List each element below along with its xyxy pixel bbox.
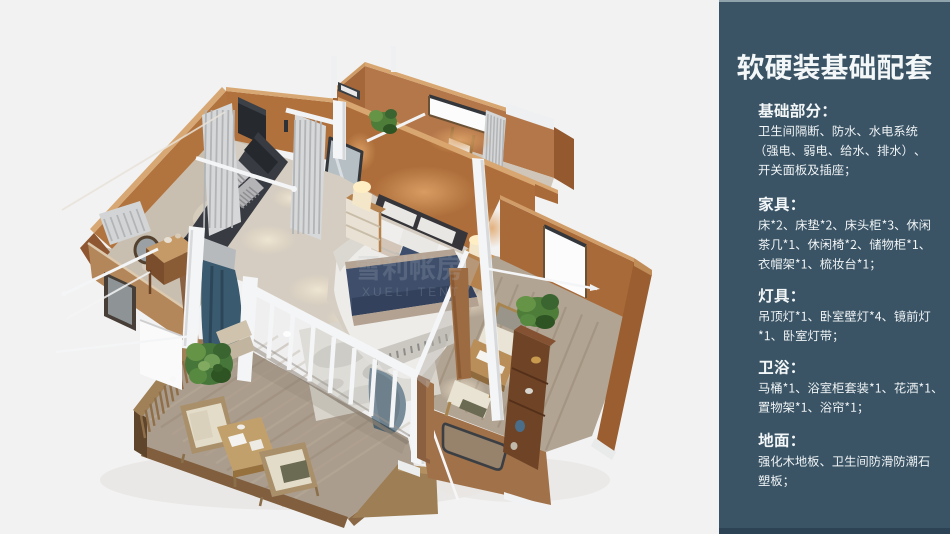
- svg-text:XUELI TENT: XUELI TENT: [362, 285, 461, 299]
